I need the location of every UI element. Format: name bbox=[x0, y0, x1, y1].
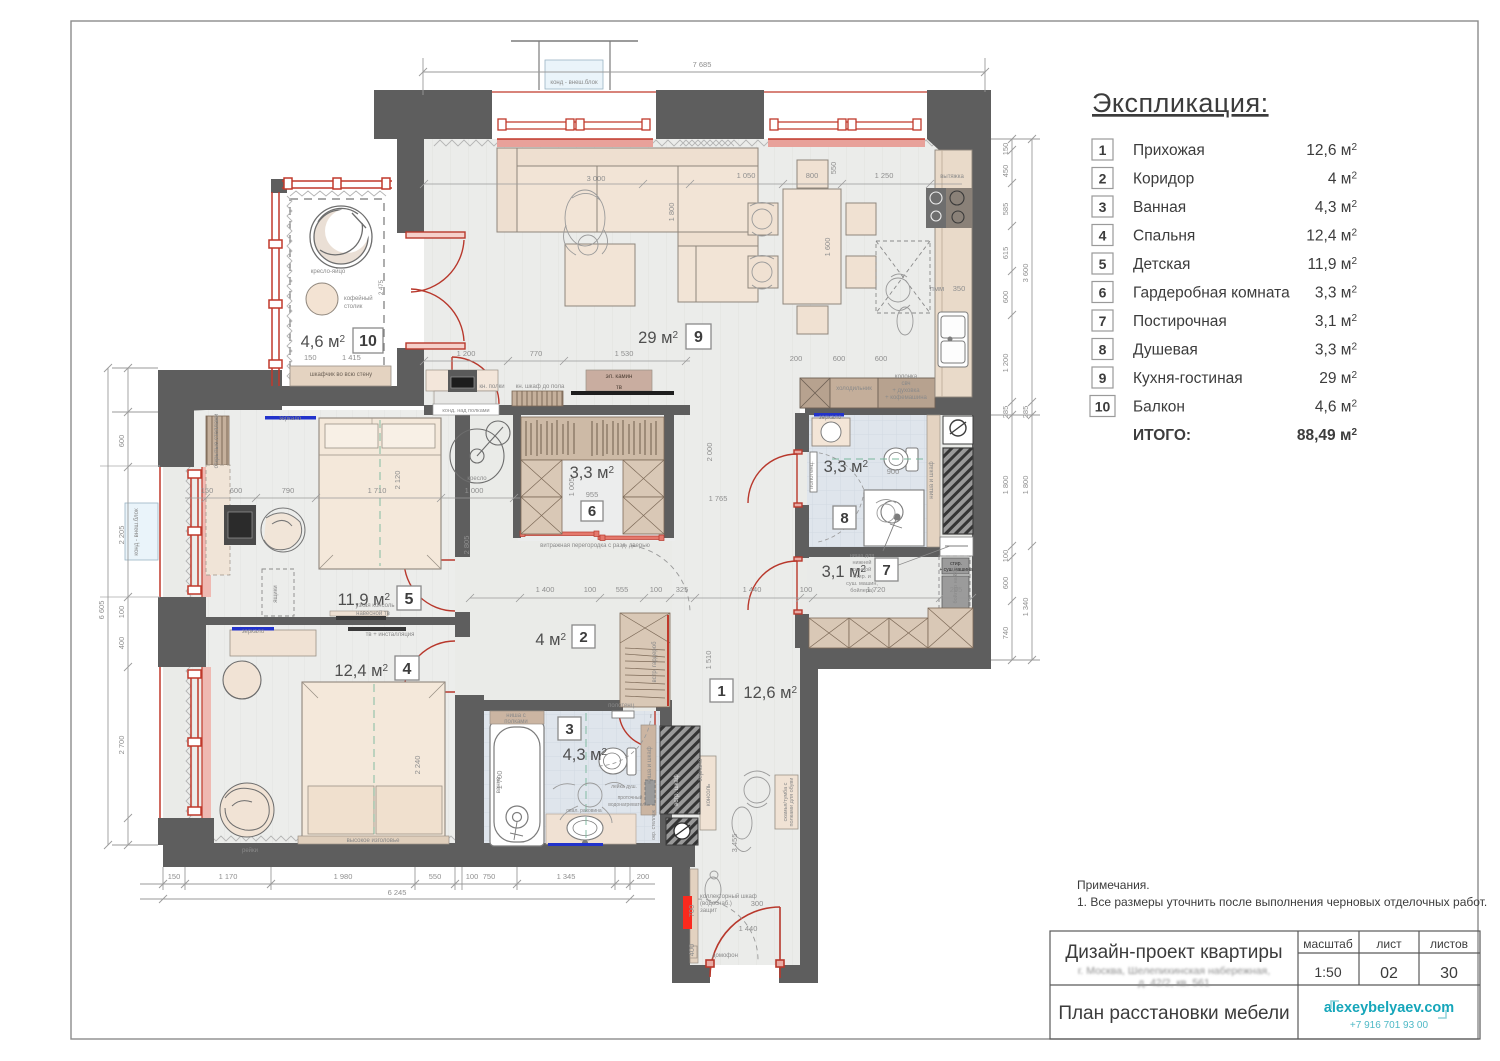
svg-text:100: 100 bbox=[466, 872, 479, 881]
svg-text:ящики: ящики bbox=[273, 585, 279, 603]
svg-text:8: 8 bbox=[1099, 342, 1107, 358]
svg-text:листов: листов bbox=[1430, 937, 1468, 951]
svg-text:кресло: кресло bbox=[467, 476, 487, 482]
svg-text:5: 5 bbox=[405, 591, 414, 608]
svg-text:4: 4 bbox=[403, 661, 412, 678]
svg-text:6 245: 6 245 bbox=[388, 888, 407, 897]
svg-text:окр. стеллаж: окр. стеллаж bbox=[651, 809, 657, 839]
svg-text:200: 200 bbox=[637, 872, 650, 881]
svg-text:955: 955 bbox=[586, 490, 599, 499]
svg-text:11,9 м2: 11,9 м2 bbox=[1307, 256, 1357, 273]
svg-text:1 415: 1 415 bbox=[342, 353, 361, 362]
svg-text:7: 7 bbox=[1099, 313, 1107, 329]
svg-text:600: 600 bbox=[230, 486, 243, 495]
svg-text:7: 7 bbox=[882, 562, 890, 579]
svg-text:400: 400 bbox=[687, 944, 696, 957]
svg-text:3 000: 3 000 bbox=[587, 174, 606, 183]
svg-text:колонка: колонка bbox=[895, 374, 918, 380]
svg-text:1 000: 1 000 bbox=[465, 486, 484, 495]
svg-text:суш. машин,: суш. машин, bbox=[846, 581, 878, 587]
svg-text:Дизайн-проект квартиры: Дизайн-проект квартиры bbox=[1065, 942, 1282, 963]
svg-text:План расстановки мебели: План расстановки мебели bbox=[1058, 1003, 1289, 1024]
svg-text:600: 600 bbox=[833, 354, 846, 363]
svg-text:полками: полками bbox=[504, 719, 528, 725]
svg-text:3,1 м2: 3,1 м2 bbox=[1315, 313, 1358, 330]
svg-text:1 800: 1 800 bbox=[1021, 476, 1030, 495]
svg-text:зеркало: зеркало bbox=[242, 629, 265, 635]
svg-text:12,4 м2: 12,4 м2 bbox=[1306, 228, 1357, 245]
svg-text:коллекторный шкаф: коллекторный шкаф bbox=[700, 893, 757, 900]
svg-text:свч: свч bbox=[901, 381, 910, 387]
svg-text:зеркало: зеркало bbox=[819, 415, 842, 421]
svg-text:проточный: проточный bbox=[618, 794, 643, 801]
svg-text:4: 4 bbox=[1099, 228, 1107, 244]
svg-text:9: 9 bbox=[694, 329, 703, 346]
svg-text:+ духовка: + духовка bbox=[892, 388, 920, 394]
svg-text:2 805: 2 805 bbox=[462, 536, 471, 555]
svg-text:холодильник: холодильник bbox=[836, 386, 872, 392]
svg-text:домофон: домофон bbox=[712, 953, 738, 959]
svg-text:1 600: 1 600 bbox=[823, 238, 832, 257]
svg-text:тв + инсталляция: тв + инсталляция bbox=[366, 632, 415, 638]
svg-text:1 340: 1 340 bbox=[1021, 598, 1030, 617]
svg-text:3,3 м2: 3,3 м2 bbox=[824, 458, 869, 476]
svg-text:9: 9 bbox=[1099, 370, 1107, 386]
svg-text:рейки: рейки bbox=[242, 847, 258, 854]
svg-text:Балкон: Балкон bbox=[1133, 399, 1185, 416]
svg-text:кресло-яйцо: кресло-яйцо bbox=[311, 268, 346, 275]
svg-text:1 510: 1 510 bbox=[704, 651, 713, 670]
svg-text:овал. раковина: овал. раковина bbox=[566, 808, 602, 814]
svg-text:ниша и шкаф: ниша и шкаф bbox=[929, 461, 935, 498]
svg-text:585: 585 bbox=[1001, 203, 1010, 216]
svg-text:Примечания.: Примечания. bbox=[1077, 878, 1150, 892]
svg-text:узкая консоль: узкая консоль bbox=[355, 603, 394, 609]
svg-text:1 710: 1 710 bbox=[368, 486, 387, 495]
svg-text:3: 3 bbox=[565, 721, 573, 738]
svg-text:1 800: 1 800 bbox=[1001, 476, 1010, 495]
svg-text:1 980: 1 980 bbox=[334, 872, 353, 881]
svg-text:встр. гардероб: встр. гардероб bbox=[652, 641, 658, 683]
svg-text:600: 600 bbox=[1001, 291, 1010, 304]
svg-text:6: 6 bbox=[1099, 285, 1107, 301]
svg-text:зеркало: зеркало bbox=[698, 758, 704, 781]
svg-text:150: 150 bbox=[168, 872, 181, 881]
svg-text:100: 100 bbox=[584, 585, 597, 594]
svg-text:1 440: 1 440 bbox=[739, 924, 758, 933]
svg-text:3,3 м2: 3,3 м2 bbox=[1315, 285, 1358, 302]
svg-text:2: 2 bbox=[1099, 171, 1107, 187]
svg-text:1:50: 1:50 bbox=[1314, 964, 1341, 980]
svg-text:ранной: ранной bbox=[853, 566, 871, 573]
svg-text:навесной тв: навесной тв bbox=[356, 610, 390, 617]
svg-text:масштаб: масштаб bbox=[1303, 937, 1353, 951]
svg-text:615: 615 bbox=[1001, 247, 1010, 260]
svg-text:150: 150 bbox=[201, 486, 214, 495]
svg-text:02: 02 bbox=[1380, 965, 1398, 982]
svg-text:пмм: пмм bbox=[930, 284, 944, 293]
svg-text:1 345: 1 345 bbox=[557, 872, 576, 881]
svg-text:1 400: 1 400 bbox=[536, 585, 555, 594]
svg-text:консоль: консоль bbox=[706, 784, 712, 806]
svg-text:нижней: нижней bbox=[853, 559, 872, 566]
svg-text:полотенц.: полотенц. bbox=[809, 461, 815, 489]
svg-text:зеркало: зеркало bbox=[279, 416, 302, 422]
svg-text:столик: столик bbox=[344, 304, 363, 310]
svg-text:12,6 м2: 12,6 м2 bbox=[1306, 142, 1357, 159]
svg-text:10: 10 bbox=[359, 333, 377, 350]
svg-text:1 250: 1 250 bbox=[875, 171, 894, 180]
svg-text:285: 285 bbox=[1021, 406, 1030, 419]
svg-text:30: 30 bbox=[1440, 965, 1458, 982]
svg-text:1 530: 1 530 bbox=[615, 349, 634, 358]
svg-text:Кухня-гостиная: Кухня-гостиная bbox=[1133, 370, 1243, 387]
svg-text:1: 1 bbox=[1099, 142, 1107, 158]
svg-text:1 200: 1 200 bbox=[1001, 354, 1010, 373]
svg-text:7 685: 7 685 bbox=[693, 60, 712, 69]
svg-text:д. 42/2, кв. 561: д. 42/2, кв. 561 bbox=[1138, 977, 1210, 989]
svg-text:тв: тв bbox=[616, 385, 622, 391]
svg-text:защит: защит bbox=[700, 908, 717, 914]
svg-text:12,4 м2: 12,4 м2 bbox=[334, 662, 388, 680]
svg-text:8: 8 bbox=[840, 510, 848, 527]
svg-text:кофейный: кофейный bbox=[344, 295, 373, 302]
svg-text:Коридор: Коридор bbox=[1133, 171, 1194, 188]
svg-text:900: 900 bbox=[887, 467, 900, 476]
svg-text:шкафчик во всю стену: шкафчик во всю стену bbox=[310, 372, 372, 378]
svg-text:кн. полки: кн. полки bbox=[479, 384, 504, 390]
svg-text:2 700: 2 700 bbox=[117, 736, 126, 755]
svg-text:750: 750 bbox=[483, 872, 496, 881]
svg-text:5: 5 bbox=[1099, 256, 1107, 272]
svg-text:конд. над полками: конд. над полками bbox=[442, 408, 489, 414]
svg-text:эл. камин: эл. камин bbox=[606, 374, 633, 380]
svg-text:300: 300 bbox=[751, 899, 764, 908]
svg-text:740: 740 bbox=[1001, 627, 1010, 640]
svg-text:Ванная: Ванная bbox=[1133, 199, 1186, 216]
svg-text:2 205: 2 205 bbox=[117, 526, 126, 545]
svg-text:3: 3 bbox=[1099, 199, 1107, 215]
svg-text:лейка душ.: лейка душ. bbox=[611, 783, 637, 790]
svg-text:400: 400 bbox=[117, 637, 126, 650]
svg-text:1 050: 1 050 bbox=[737, 171, 756, 180]
svg-text:1 800: 1 800 bbox=[667, 203, 676, 222]
svg-text:3,3 м2: 3,3 м2 bbox=[1315, 342, 1358, 359]
svg-text:конд - внеш.блок: конд - внеш.блок bbox=[550, 80, 598, 86]
svg-text:88,49 м2: 88,49 м2 bbox=[1297, 427, 1358, 444]
svg-text:1 765: 1 765 bbox=[709, 494, 728, 503]
svg-text:770: 770 bbox=[530, 349, 543, 358]
svg-text:200: 200 bbox=[790, 354, 803, 363]
svg-text:555: 555 bbox=[616, 585, 629, 594]
svg-text:1 440: 1 440 bbox=[743, 585, 762, 594]
svg-text:2 240: 2 240 bbox=[413, 756, 422, 775]
svg-text:(водоснаб.): (водоснаб.) bbox=[700, 901, 732, 907]
svg-text:6: 6 bbox=[588, 503, 596, 520]
svg-text:4,3 м2: 4,3 м2 bbox=[563, 746, 608, 764]
svg-text:600: 600 bbox=[1001, 577, 1010, 590]
svg-text:285: 285 bbox=[1001, 406, 1010, 419]
svg-text:Спальня: Спальня bbox=[1133, 228, 1195, 245]
svg-text:150: 150 bbox=[1001, 143, 1010, 156]
svg-text:12,6 м2: 12,6 м2 bbox=[743, 684, 797, 702]
svg-text:1 200: 1 200 bbox=[457, 349, 476, 358]
svg-text:лист: лист bbox=[1376, 937, 1402, 951]
svg-text:alexeybelyaev.com: alexeybelyaev.com bbox=[1324, 1000, 1454, 1016]
svg-text:3 455: 3 455 bbox=[730, 834, 739, 853]
svg-text:800: 800 bbox=[806, 171, 819, 180]
svg-text:Постирочная: Постирочная bbox=[1133, 313, 1227, 330]
svg-text:4,3 м2: 4,3 м2 bbox=[1315, 199, 1358, 216]
svg-text:1 170: 1 170 bbox=[219, 872, 238, 881]
svg-text:1. Все размеры уточнить после: 1. Все размеры уточнить после выполнения… bbox=[1077, 895, 1487, 909]
svg-text:+ кофемашина: + кофемашина bbox=[885, 395, 927, 401]
svg-text:кн. шкаф до пола: кн. шкаф до пола bbox=[516, 384, 565, 390]
svg-text:700: 700 bbox=[687, 905, 696, 918]
svg-text:2: 2 bbox=[579, 629, 587, 646]
svg-text:бойлер на 80л: бойлер на 80л bbox=[952, 566, 959, 603]
svg-text:2 120: 2 120 bbox=[393, 471, 402, 490]
svg-text:стир. и: стир. и bbox=[853, 574, 871, 580]
svg-text:100: 100 bbox=[800, 585, 813, 594]
svg-text:Детская: Детская bbox=[1133, 256, 1190, 273]
svg-text:бойлера): бойлера) bbox=[850, 587, 874, 594]
svg-text:600: 600 bbox=[117, 435, 126, 448]
svg-text:полотенц.: полотенц. bbox=[608, 703, 636, 709]
svg-text:350: 350 bbox=[953, 284, 966, 293]
svg-text:4,6 м2: 4,6 м2 bbox=[1315, 399, 1358, 416]
svg-text:550: 550 bbox=[429, 872, 442, 881]
svg-text:100: 100 bbox=[1001, 550, 1010, 563]
svg-text:встр. шкаф: встр. шкаф bbox=[674, 774, 680, 805]
svg-text:550: 550 bbox=[829, 162, 838, 175]
svg-text:325: 325 bbox=[676, 585, 689, 594]
svg-text:100: 100 bbox=[117, 606, 126, 619]
svg-text:полками для обуви: полками для обуви bbox=[789, 778, 795, 827]
svg-text:3,3 м2: 3,3 м2 bbox=[570, 464, 615, 482]
svg-text:Экспликация:: Экспликация: bbox=[1092, 88, 1269, 118]
svg-text:10: 10 bbox=[1095, 399, 1111, 415]
svg-text:водонагреватель: водонагреватель bbox=[608, 802, 648, 808]
svg-text:ИТОГО:: ИТОГО: bbox=[1133, 427, 1191, 444]
svg-text:2 000: 2 000 bbox=[705, 443, 714, 462]
svg-text:ванна: ванна bbox=[496, 776, 502, 793]
svg-text:3 600: 3 600 bbox=[1021, 264, 1030, 283]
svg-text:150: 150 bbox=[304, 353, 317, 362]
svg-text:4,6 м2: 4,6 м2 bbox=[301, 333, 346, 351]
svg-text:+7 916 701 93 00: +7 916 701 93 00 bbox=[1350, 1020, 1429, 1031]
svg-text:ниша для: ниша для bbox=[850, 553, 875, 559]
svg-text:600: 600 bbox=[875, 354, 888, 363]
svg-text:2 475: 2 475 bbox=[379, 279, 385, 295]
svg-text:Гардеробная комната: Гардеробная комната bbox=[1133, 285, 1290, 302]
svg-text:конд - внеш.блок: конд - внеш.блок bbox=[134, 508, 140, 556]
svg-text:1: 1 bbox=[717, 683, 725, 700]
svg-text:ниша и шкаф: ниша и шкаф bbox=[647, 746, 653, 783]
svg-text:450: 450 bbox=[1001, 165, 1010, 178]
svg-text:высокое изголовье: высокое изголовье bbox=[347, 838, 401, 844]
svg-text:29 м2: 29 м2 bbox=[638, 329, 678, 347]
svg-text:790: 790 bbox=[282, 486, 295, 495]
svg-text:г. Москва, Шелепихинская набер: г. Москва, Шелепихинская набережная, bbox=[1078, 965, 1270, 977]
svg-text:открытые стеллажи: открытые стеллажи bbox=[214, 414, 220, 469]
svg-text:Прихожая: Прихожая bbox=[1133, 142, 1205, 159]
svg-text:вытяжка: вытяжка bbox=[940, 174, 964, 180]
svg-text:Душевая: Душевая bbox=[1133, 342, 1198, 359]
svg-text:витражная перегородка с разд.: витражная перегородка с разд. дверью bbox=[540, 543, 650, 549]
svg-text:6 605: 6 605 bbox=[97, 601, 106, 620]
svg-text:100: 100 bbox=[650, 585, 663, 594]
